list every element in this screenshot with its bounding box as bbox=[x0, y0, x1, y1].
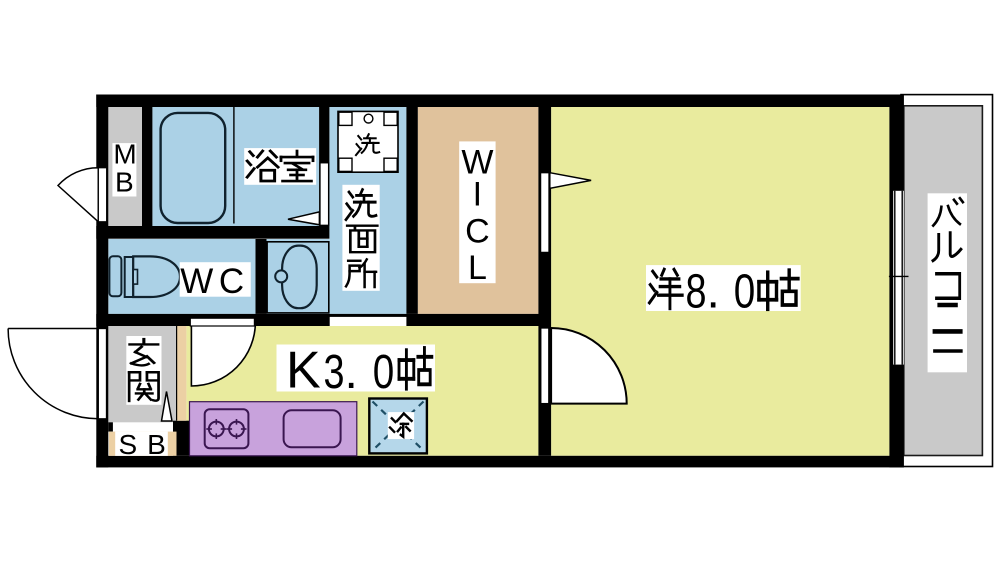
svg-text:M: M bbox=[113, 138, 136, 169]
svg-text:SB: SB bbox=[119, 429, 176, 460]
svg-text:I: I bbox=[473, 176, 482, 214]
svg-text:.: . bbox=[707, 266, 720, 319]
svg-text:K: K bbox=[286, 342, 321, 400]
svg-text:.: . bbox=[345, 346, 358, 399]
svg-text:8: 8 bbox=[686, 266, 707, 319]
svg-text:B: B bbox=[115, 167, 134, 198]
svg-text:C: C bbox=[465, 213, 490, 251]
svg-text:0: 0 bbox=[373, 346, 395, 399]
svg-text:0: 0 bbox=[734, 266, 756, 319]
svg-text:WC: WC bbox=[180, 262, 249, 301]
svg-text:L: L bbox=[468, 249, 487, 287]
svg-text:3: 3 bbox=[324, 346, 345, 399]
